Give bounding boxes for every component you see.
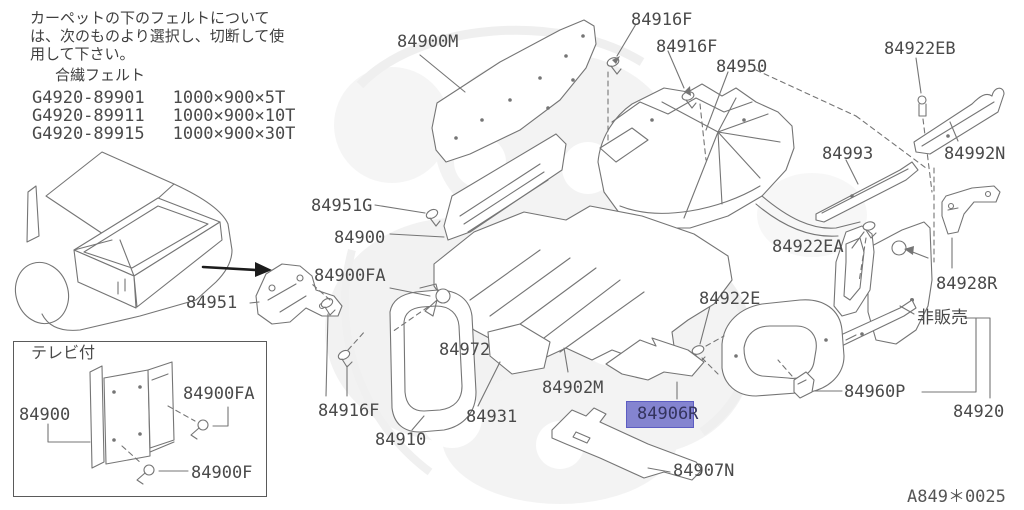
felt-note-line-3: 用して下さい。 [30,45,135,63]
part-label-84916f-2[interactable]: 84916F [656,38,717,57]
part-shape-84928R [942,186,1000,268]
part-label-84916f-1[interactable]: 84916F [631,11,692,30]
part-label-84900m[interactable]: 84900M [397,33,458,52]
part-label-84992n[interactable]: 84992N [944,145,1005,164]
felt-size: 1000×900×30T [173,124,296,144]
part-label-84906r[interactable]: 84906R [637,404,698,424]
part-label-84920[interactable]: 84920 [953,403,1004,422]
part-label-84922eb[interactable]: 84922EB [884,40,956,59]
part-label-84993[interactable]: 84993 [822,145,873,164]
part-label-84928r[interactable]: 84928R [936,275,997,294]
inset-title: テレビ付 [31,343,95,362]
felt-row-2: G4920-899111000×900×10T [32,106,295,126]
part-label-84951[interactable]: 84951 [186,294,237,313]
felt-size: 1000×900×10T [173,106,296,126]
felt-row-3: G4920-899151000×900×30T [32,124,295,144]
part-label-84907n[interactable]: 84907N [673,462,734,481]
part-label-84900fa[interactable]: 84900FA [314,267,386,286]
felt-row-1: G4920-899011000×900×5T [32,88,285,108]
felt-note-line-2: は、次のものより選択し、切断して使 [30,27,284,45]
part-label-84902m[interactable]: 84902M [542,379,603,398]
part-label-84900[interactable]: 84900 [334,229,385,248]
part-shape-84922EB [916,58,932,192]
part-label-84922e[interactable]: 84922E [699,290,760,309]
part-label-84910[interactable]: 84910 [375,431,426,450]
direction-arrow [203,262,272,277]
parts-diagram-page: カーペットの下のフェルトについて は、次のものより選択し、切断して使 用して下さ… [0,0,1024,510]
part-label-84951g[interactable]: 84951G [311,197,372,216]
part-label-84922ea[interactable]: 84922EA [772,238,844,257]
part-label-84950[interactable]: 84950 [716,58,767,77]
felt-note-line-1: カーペットの下のフェルトについて [30,9,270,27]
part-label-84972[interactable]: 84972 [439,341,490,360]
inset-label-84900f[interactable]: 84900F [191,464,252,483]
not-sold-label: 非販売 [917,309,968,328]
felt-code: G4920-89901 [32,88,145,108]
inset-label-84900fa[interactable]: 84900FA [183,385,255,404]
part-label-84916f-3[interactable]: 84916F [318,402,379,421]
felt-code: G4920-89915 [32,124,145,144]
felt-table-title: 合繊フェルト [55,66,145,84]
inset-label-84900[interactable]: 84900 [19,406,70,425]
part-label-84960p[interactable]: 84960P [844,383,905,402]
part-label-84931[interactable]: 84931 [466,408,517,427]
felt-size: 1000×900×5T [173,88,286,108]
diagram-code: A849＊0025 [907,488,1006,507]
felt-code: G4920-89911 [32,106,145,126]
